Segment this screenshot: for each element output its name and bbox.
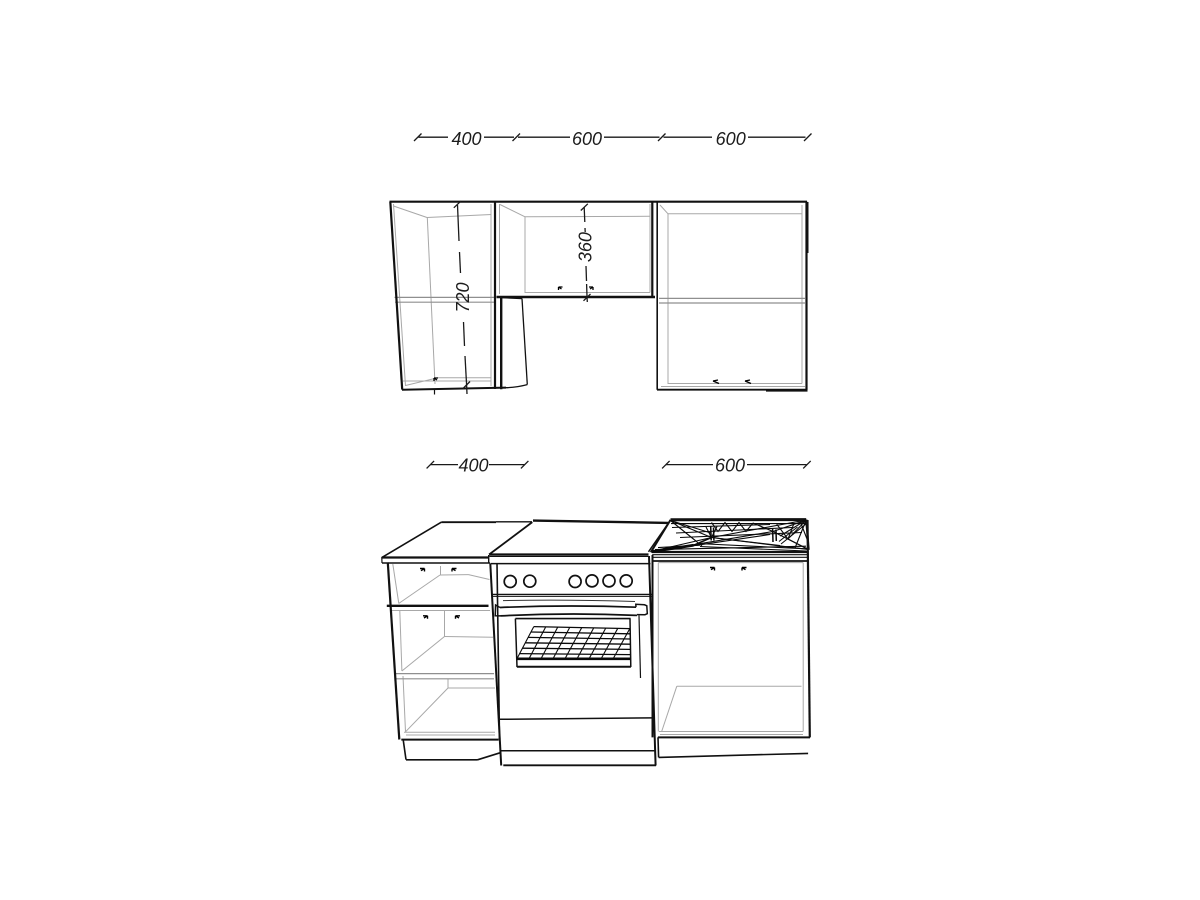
svg-text:360: 360: [576, 232, 596, 262]
svg-text:600: 600: [716, 129, 746, 149]
svg-text:720: 720: [453, 282, 473, 312]
svg-text:400: 400: [458, 456, 488, 476]
svg-text:600: 600: [715, 456, 745, 476]
svg-text:400: 400: [451, 129, 481, 149]
svg-text:600: 600: [572, 129, 602, 149]
